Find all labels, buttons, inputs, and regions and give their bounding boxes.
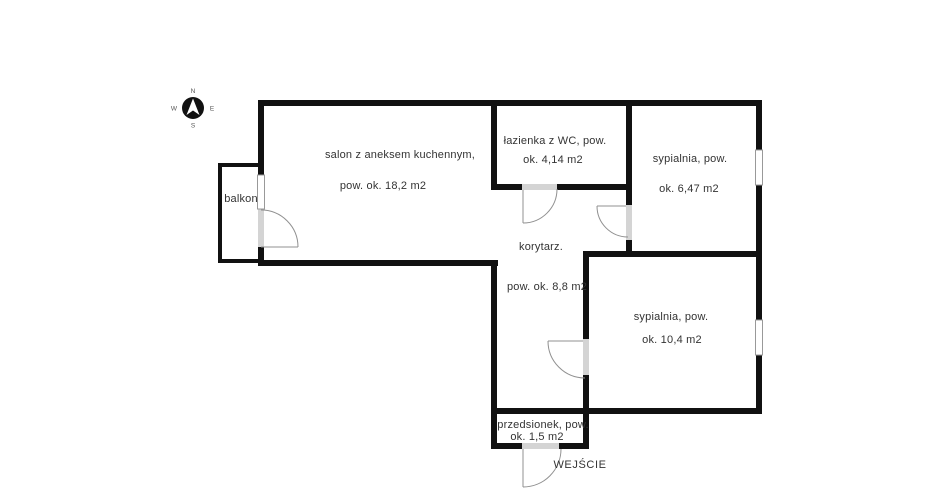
bathroom-door-swing: [523, 189, 557, 223]
room-area-salon: pow. ok. 18,2 m2: [340, 180, 426, 192]
room-area-sypialnia1: ok. 6,47 m2: [659, 183, 719, 195]
bedroom1-door-opening: [626, 205, 632, 240]
bedroom2-window: [756, 320, 763, 355]
compass-label-n: N: [191, 88, 196, 95]
wall-top: [258, 100, 762, 106]
room-area-korytarz: pow. ok. 8,8 m2: [507, 281, 587, 293]
room-area-lazienka: ok. 4,14 m2: [523, 154, 583, 166]
room-area-przedsionek: ok. 1,5 m2: [510, 431, 563, 443]
floor-plan: N E S W balkon salon z aneksem kuchennym…: [0, 0, 950, 494]
balcony-door-swing: [261, 210, 298, 247]
wall-salon-bottom: [258, 260, 498, 266]
door-swings: [261, 189, 628, 487]
room-label-balkon: balkon: [224, 193, 258, 205]
room-label-korytarz: korytarz.: [519, 241, 563, 253]
bedroom2-door-swing: [548, 341, 585, 378]
entrance-label: WEJŚCIE: [553, 459, 606, 471]
compass-label-e: E: [210, 106, 215, 113]
compass-label-s: S: [191, 123, 196, 130]
balcony-window: [258, 175, 265, 209]
compass-icon: N E S W: [171, 88, 215, 130]
floor-plan-drawing: N E S W: [0, 0, 950, 494]
bathroom-door-opening: [522, 184, 557, 190]
bedroom1-door-swing: [597, 206, 628, 237]
wall-bedroom-divider: [583, 251, 762, 257]
wall-balcony-top: [218, 163, 262, 167]
room-area-sypialnia2: ok. 10,4 m2: [642, 334, 702, 346]
wall-corridor-left: [491, 260, 497, 449]
entrance-door-opening: [522, 443, 559, 449]
room-label-salon: salon z aneksem kuchennym,: [325, 149, 475, 161]
compass-label-w: W: [171, 106, 178, 113]
balcony-door-opening: [258, 209, 264, 247]
wall-balcony-left: [218, 163, 222, 263]
wall-bathroom-left: [491, 100, 497, 190]
room-label-sypialnia2: sypialnia, pow.: [634, 311, 709, 323]
wall-balcony-bottom: [218, 259, 262, 263]
wall-bottom-main: [491, 408, 762, 414]
bedroom2-door-opening: [583, 339, 589, 375]
room-label-sypialnia1: sypialnia, pow.: [653, 153, 728, 165]
wall-bathroom-bottom: [491, 184, 632, 190]
room-label-lazienka: łazienka z WC, pow.: [504, 135, 607, 147]
wall-bedroom2-left: [583, 251, 589, 414]
room-label-przedsionek: przedsionek, pow.: [497, 419, 588, 431]
bedroom1-window: [756, 150, 763, 185]
